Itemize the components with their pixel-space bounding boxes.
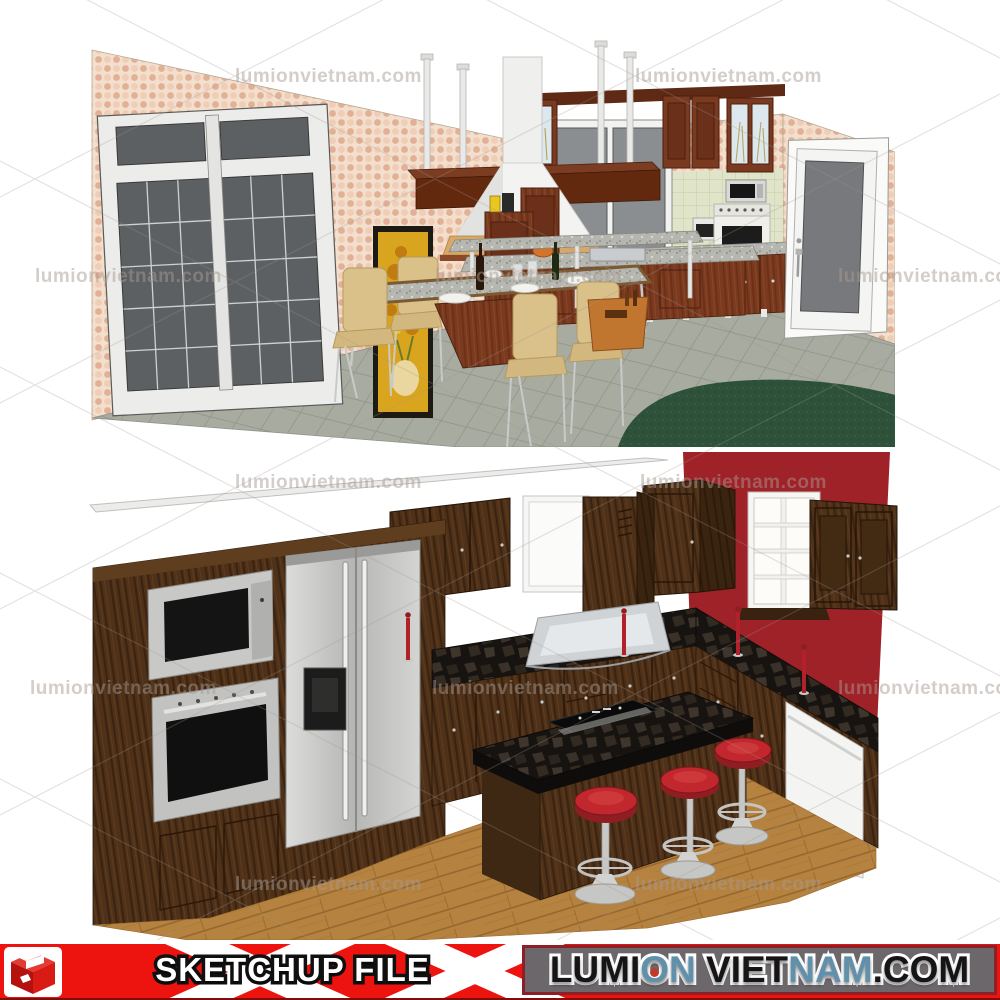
- wall-microwave-oven: [148, 570, 273, 680]
- top-kitchen-svg: [85, 10, 895, 447]
- site-letter-group: VIET: [706, 949, 788, 991]
- black-appliance: [502, 193, 514, 212]
- white-wall-window: [523, 496, 589, 592]
- bottom-kitchen-svg: [88, 450, 908, 940]
- sketchup-file-label: SKETCHUP FILE: [70, 951, 515, 989]
- wood-basket: [588, 290, 648, 351]
- site-letter-group: O: [640, 949, 669, 991]
- top-kitchen-render: [85, 10, 895, 447]
- site-letter-group: LUMI: [550, 949, 640, 991]
- site-panel: LUMION VIETNAM.COM: [522, 945, 997, 995]
- french-doors: [97, 104, 342, 416]
- sketchup-kitchen-promo-image: { "page": {"width": 1000, "height": 1000…: [0, 0, 1000, 1000]
- site-label: LUMION VIETNAM.COM: [550, 949, 969, 991]
- footer-banner: SKETCHUP FILE LUMION VIETNAM.COM: [0, 944, 1000, 1000]
- sketchup-logo: [4, 947, 62, 997]
- refrigerator: [286, 540, 420, 848]
- site-letter-group: N: [669, 949, 696, 991]
- right-upper-cabinets: [810, 500, 897, 610]
- site-letter-group: NAM: [788, 949, 872, 991]
- bottom-kitchen-render: [88, 450, 908, 940]
- wall-oven: [152, 678, 280, 822]
- island-sink: [590, 248, 645, 261]
- wall-microwave: [726, 180, 766, 202]
- back-door: [782, 134, 894, 342]
- yellow-book: [490, 196, 500, 212]
- o-red-dot: [650, 968, 659, 977]
- site-letter-group: .COM: [873, 949, 970, 991]
- sketchup-logo-icon: [4, 947, 62, 997]
- site-letter-group: [696, 949, 706, 991]
- corner-upper-cabinet: [643, 480, 735, 596]
